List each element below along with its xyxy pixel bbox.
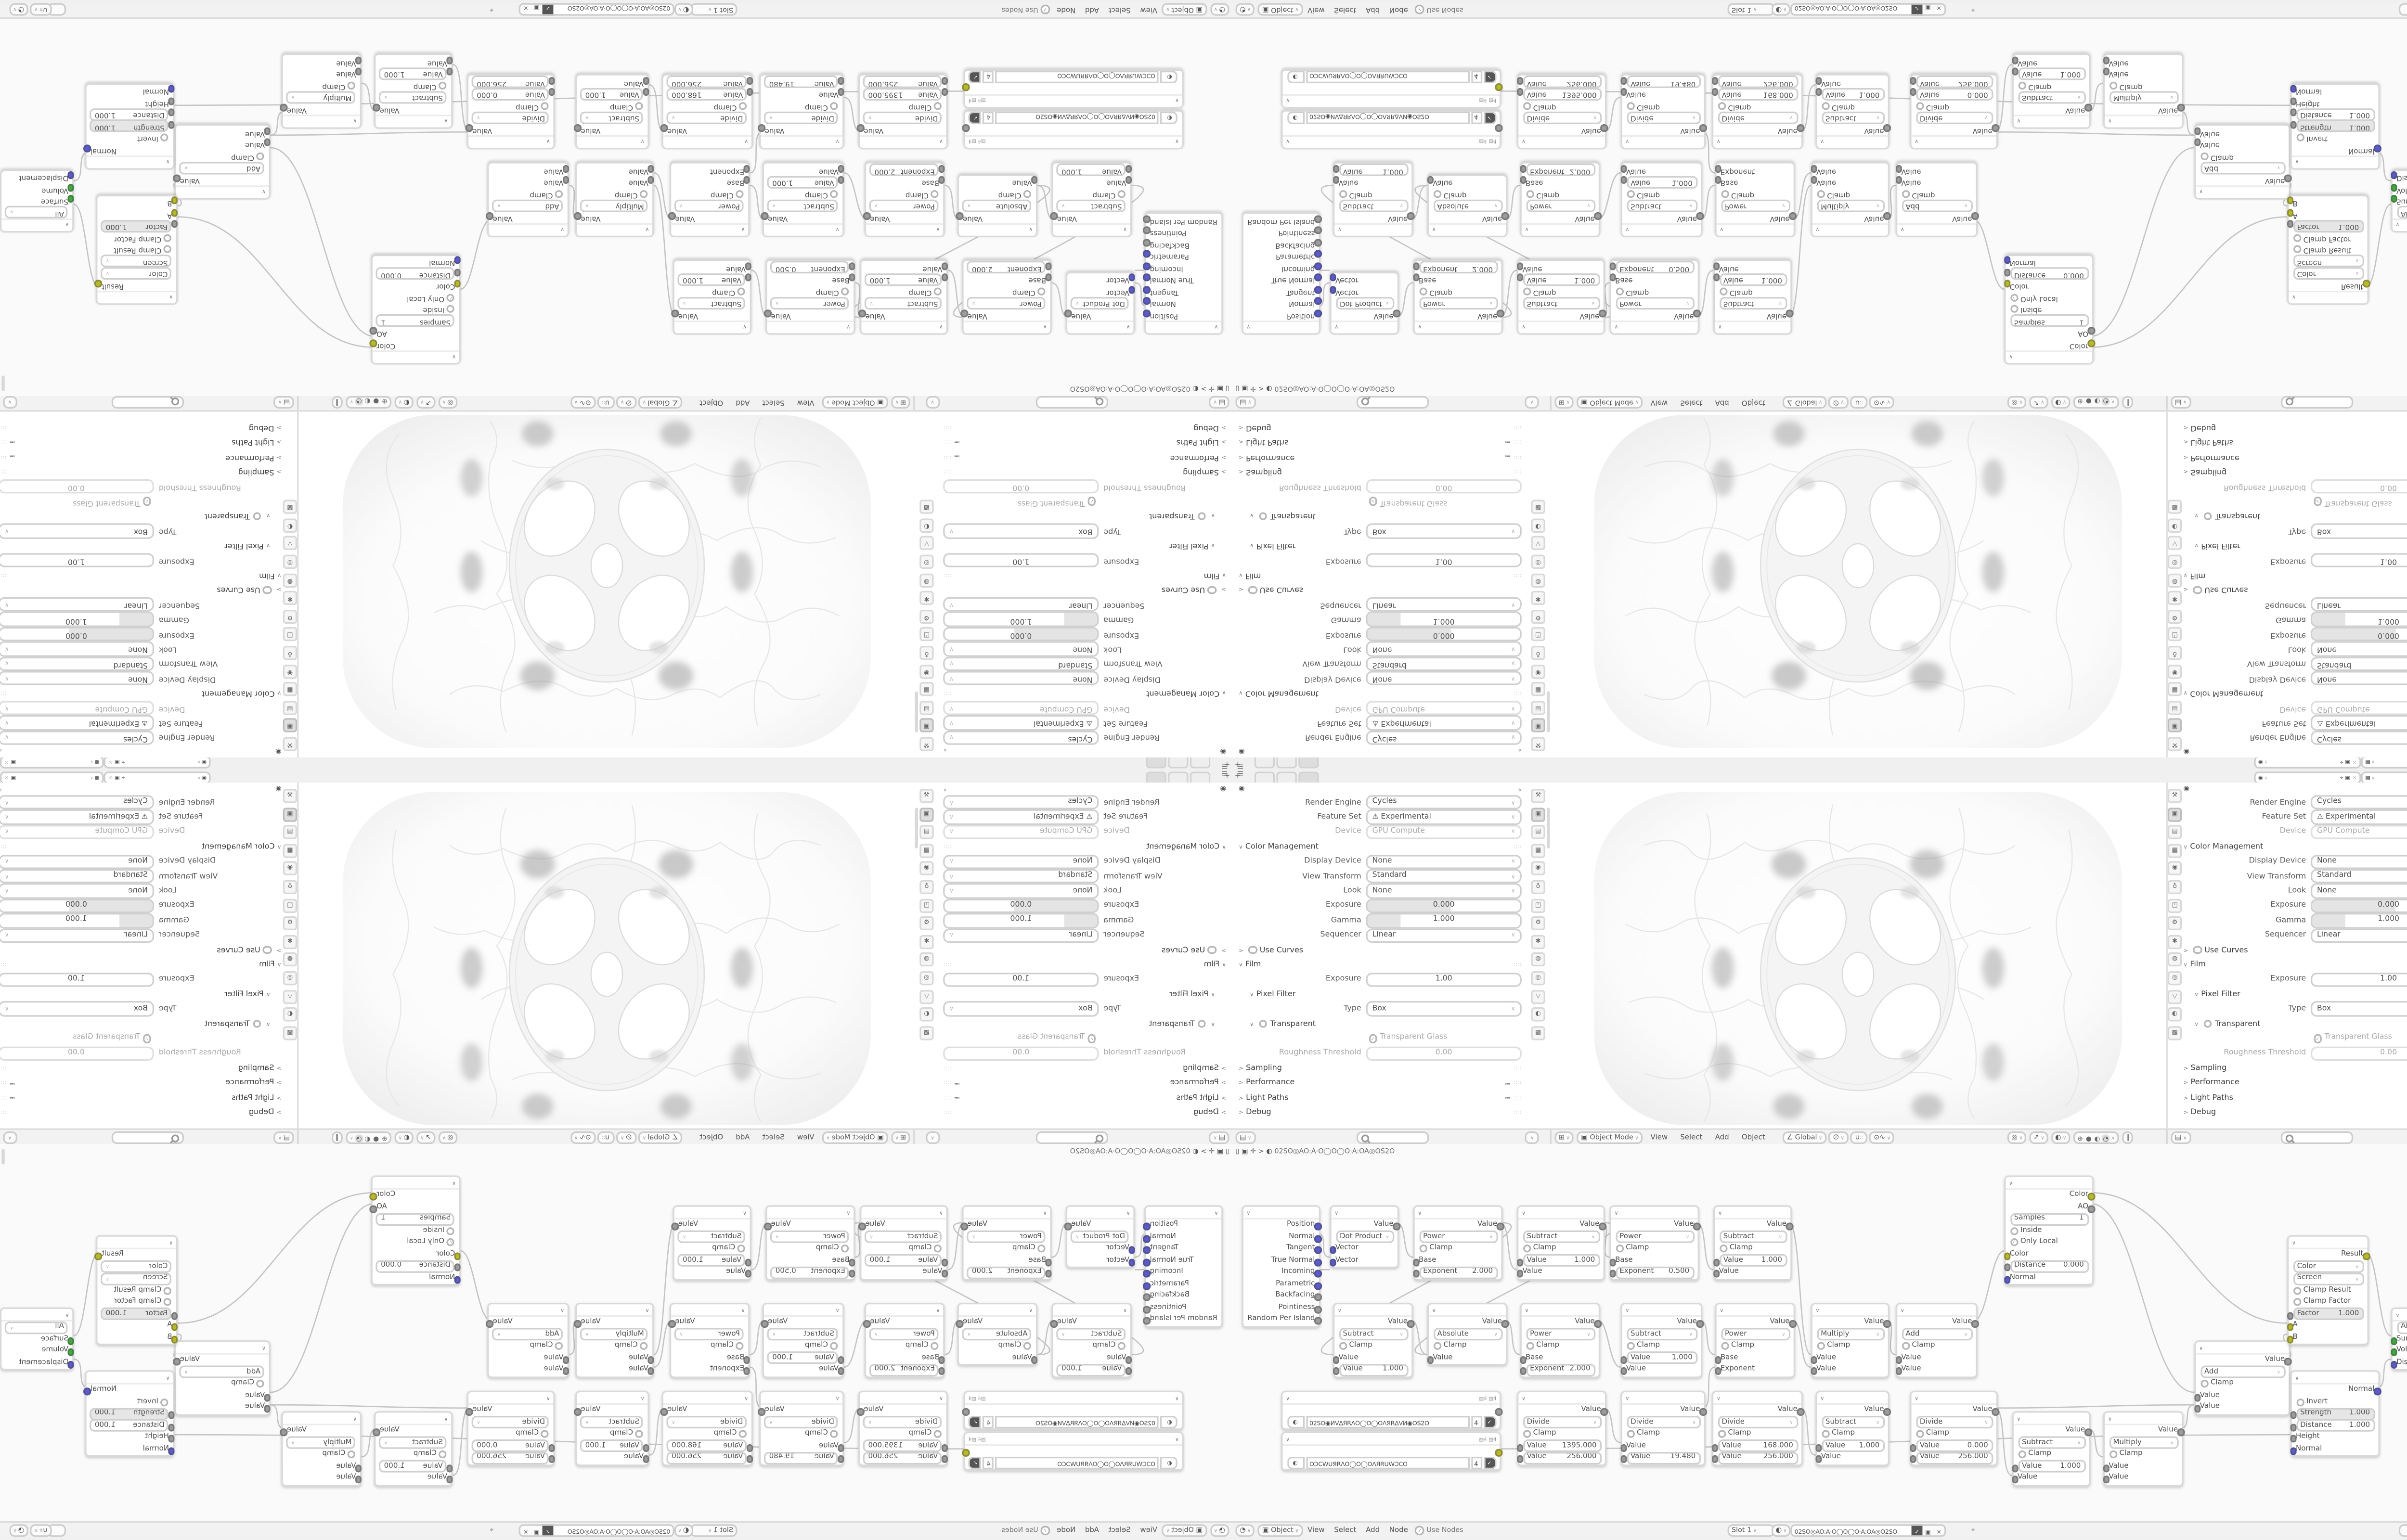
copy-icon[interactable]: ▣ (11, 774, 16, 781)
properties-tab-data-icon[interactable]: ▽ (919, 537, 933, 551)
node-row-value[interactable]: Value19.480 (761, 1452, 842, 1463)
properties-search[interactable] (1357, 1130, 1429, 1146)
dropdown-sequencer[interactable]: Linear∨ (943, 928, 1099, 943)
properties-filter[interactable]: ∨ (1525, 395, 1538, 411)
node-row-divide[interactable]: Divide∨ (468, 1417, 553, 1428)
section-sampling[interactable]: >Sampling∷∷ (2184, 1061, 2407, 1076)
menu-select[interactable]: Select (762, 1134, 784, 1142)
workspace-tabs[interactable] (1255, 771, 1320, 783)
node-row-clamp[interactable]: Clamp (671, 188, 748, 199)
checkbox-transparent-glass[interactable]: ✓Transparent Glass (1239, 1031, 1522, 1046)
node-row-value[interactable]: Value256.000 (1912, 76, 1996, 88)
properties-tab-modifiers-icon[interactable]: ⚙ (283, 609, 297, 623)
fake-user-shield-button[interactable]: ✓ (969, 1416, 982, 1428)
node-row-subtract[interactable]: Subtract∨ (2014, 1437, 2089, 1449)
properties-tab-particles-icon[interactable]: ✱ (919, 591, 933, 605)
node-row-clamp[interactable]: Clamp (577, 1428, 647, 1440)
node-math[interactable]: ∨ValueMultiply∨ClampValueValue (575, 163, 654, 237)
slider-exposure[interactable]: 0.000 (943, 898, 1099, 913)
node-math[interactable]: ∨ValueSubtract∨ClampValue1.000Value (1815, 75, 1889, 149)
node-row-power[interactable]: Power∨ (767, 1231, 854, 1243)
menu-add[interactable]: Add (1715, 398, 1729, 406)
section-color-management[interactable]: ∨Color Management∷∷ (943, 686, 1226, 701)
properties-tab-material-icon[interactable]: ◐ (919, 518, 933, 532)
node-math[interactable]: ∨ValuePower∨ClampBaseExponent0.500 (765, 1205, 855, 1280)
node-row-clamp[interactable]: Clamp (866, 188, 943, 199)
node-row-inside[interactable]: Inside (373, 303, 459, 315)
dropdown-render-engine[interactable]: Cycles∨ (0, 730, 154, 745)
dropdown-view-transform[interactable]: Standard∨ (1366, 656, 1522, 671)
node-math[interactable]: ∨ValuePower∨ClampBaseExponent0.500 (765, 260, 855, 334)
node-math[interactable]: ∨ValuePower∨ClampBaseExponent2.000 (1413, 1205, 1503, 1280)
properties-tab-physics-icon[interactable]: ◍ (283, 573, 297, 587)
properties-tab-output-icon[interactable]: ▤ (283, 701, 297, 715)
menu-object[interactable]: Object (699, 1134, 723, 1142)
node-math[interactable]: ∨ValueDivide∨ClampValueValue19.480 (759, 1391, 844, 1465)
node-row-clamp[interactable]: Clamp (1053, 188, 1130, 199)
node-row-value[interactable]: Value19.480 (761, 76, 842, 88)
section-film[interactable]: ∨Film∷∷ (943, 958, 1226, 973)
group-browse-icon[interactable]: ◐ (1287, 70, 1304, 82)
scrollbar[interactable] (916, 808, 919, 848)
node-row-clamp[interactable]: Clamp (1622, 100, 1704, 111)
snap-button[interactable]: ∪⌗∨ (30, 3, 52, 16)
node-math[interactable]: ∨ValueSubtract∨ClampValueValue1.000 (1333, 163, 1413, 237)
section-film[interactable]: ∨Film∷∷ (1239, 568, 1522, 583)
shading-mode-group[interactable]: ⊕●◐◔∨ (2073, 1131, 2120, 1144)
dropdown-feature-set[interactable]: ⚠Experimental∨ (0, 810, 154, 825)
menu-node[interactable]: Node (1057, 1527, 1075, 1534)
node-math[interactable]: ∨ValueDivide∨ClampValue1395.000Value256.… (1517, 75, 1606, 149)
node-math[interactable]: ∨ValueDivide∨ClampValue0.000Value256.000 (467, 1391, 555, 1465)
node-row-clamp[interactable]: Clamp (860, 1428, 946, 1440)
node-math[interactable]: ∨ValuePower∨ClampBaseExponent (1715, 163, 1795, 237)
node-math[interactable]: ∨ValuePower∨ClampBaseExponent0.500 (1610, 1205, 1699, 1280)
menu-object[interactable]: Object (1742, 398, 1765, 406)
node-row-clamp[interactable]: Clamp (1622, 188, 1701, 199)
node-row-divide[interactable]: Divide∨ (663, 1417, 751, 1428)
node-row-distance[interactable]: Distance1.000 (2292, 108, 2379, 120)
node-math[interactable]: ∨ValueAdd∨ClampValueValue (487, 1303, 569, 1377)
node-row-power[interactable]: Power∨ (1522, 200, 1599, 211)
node-row-clamp[interactable]: Clamp (764, 1340, 842, 1352)
node-row-clamp[interactable]: Clamp (2014, 79, 2089, 91)
node-math[interactable]: ∨ValueAdd∨ClampValueValue (1896, 1303, 1978, 1377)
section-use-curves[interactable]: >Use Curves (2184, 943, 2407, 958)
solid-icon[interactable]: ● (2084, 1134, 2093, 1142)
node-math[interactable]: ∨ValueSubtract∨ClampValue1.000Value (1517, 260, 1605, 334)
node-math[interactable]: ∨ValueSubtract∨ClampValueValue1.000 (1051, 1303, 1132, 1377)
node-math[interactable]: ∨ValueAdd∨ClampValueValue (2194, 1340, 2290, 1415)
material-browse-button[interactable]: ◐∨ (674, 3, 693, 16)
properties-search[interactable] (2281, 1130, 2353, 1146)
node-row-clamp[interactable]: Clamp (860, 100, 946, 111)
section-pixel-filter[interactable]: ∨Pixel Filter (2184, 538, 2407, 553)
editor-type-button[interactable]: ▤∨ (1209, 1131, 1229, 1144)
use-nodes-checkbox[interactable]: ✓Use Nodes (1413, 1526, 1463, 1535)
node-row-subtract[interactable]: Subtract∨ (861, 1231, 946, 1243)
viewport-editor-type-button[interactable]: ⊞∨ (891, 1131, 910, 1144)
properties-search[interactable] (1357, 395, 1429, 411)
properties-tab-material-icon[interactable]: ◐ (2168, 518, 2182, 532)
node-nodegroup[interactable]: ∨▤4 ▤4◐02SO◉ИVΔЯRΛO◯O◯OΛЯRΔVИ◉OS2O4✓ (1281, 1391, 1501, 1430)
properties-tab-column[interactable]: ⚒▣▤▦◉♁◳⚙✱◍◎▽◐▩ (2168, 412, 2181, 757)
properties-tab-object-icon[interactable]: ◳ (2168, 628, 2182, 642)
section-debug[interactable]: >Debug∷∷ (943, 420, 1226, 435)
properties-tab-world-icon[interactable]: ♁ (1531, 880, 1545, 894)
viewport-3d-rendered[interactable] (1550, 412, 2166, 757)
properties-tab-particles-icon[interactable]: ✱ (2168, 935, 2182, 949)
node-row-power[interactable]: Power∨ (1717, 1329, 1794, 1340)
menu-select[interactable]: Select (1680, 1134, 1702, 1142)
group-browse-icon[interactable]: ◐ (1161, 70, 1178, 82)
node-row-clamp[interactable]: Clamp (1717, 188, 1794, 199)
node-row-distance[interactable]: Distance0.000 (373, 1260, 459, 1272)
node-math[interactable]: ∨ValueMultiply∨ClampValueValue (1811, 1303, 1889, 1377)
node-math[interactable]: ∨ValuePower∨ClampBaseExponent2.000 (1520, 163, 1601, 237)
node-row-subtract[interactable]: Subtract∨ (1053, 1329, 1130, 1340)
node-row-value[interactable]: Value1.000 (1622, 176, 1701, 188)
material-name-field[interactable]: 02SO◎AO:A·O◯O◯O·A:OA◎O2SO (1790, 1524, 1919, 1537)
node-row-value[interactable]: Value1.000 (1053, 164, 1130, 176)
dropdown-view-transform[interactable]: Standard∨ (0, 656, 154, 671)
node-row-samples[interactable]: Samples1 (373, 1213, 459, 1225)
group-name-field[interactable]: OƆCWUЯRΛO◯O◯OΛЯRUWƆCO (1306, 1457, 1469, 1469)
node-row-value[interactable]: Value1.000 (1334, 1364, 1411, 1375)
workspace-tab[interactable] (1298, 757, 1318, 769)
node-math[interactable]: ∨ValueDivide∨ClampValueValue19.480 (759, 75, 844, 149)
node-math[interactable]: ∨ValueAbsolute∨ClampValue (958, 1303, 1038, 1366)
dropdown-render-engine[interactable]: Cycles∨ (2311, 730, 2407, 745)
node-math[interactable]: ∨ValuePower∨ClampBaseExponent2.000 (962, 260, 1051, 334)
node-row-invert[interactable]: Invert (87, 1396, 173, 1408)
node-math[interactable]: ∨ValuePower∨ClampBaseExponent2.000 (865, 1303, 945, 1377)
node-row-color[interactable]: Color∨ (2289, 1261, 2367, 1272)
properties-tab-viewlayer-icon[interactable]: ▦ (1531, 844, 1545, 858)
node-row-clamp[interactable]: Clamp (1713, 100, 1801, 111)
mode-dropdown[interactable]: ▣ Object Mode∨ (822, 396, 888, 409)
properties-tab-tool-icon[interactable]: ⚒ (2168, 737, 2182, 751)
pivot-button[interactable]: ◎∨ (2007, 396, 2027, 409)
editor-type-button[interactable]: ▤∨ (274, 396, 294, 409)
close-icon[interactable]: × (4, 759, 9, 765)
unlink-button[interactable]: × (1933, 1524, 1946, 1537)
transform-gizmo-button[interactable]: ↗∨ (2029, 1131, 2048, 1144)
pin-icon[interactable]: ⌖ (943, 747, 947, 755)
properties-tab-viewlayer-icon[interactable]: ▦ (283, 682, 297, 696)
node-row-clamp[interactable]: Clamp (674, 1243, 750, 1255)
node-math[interactable]: ∨ValueDivide∨ClampValueValue19.480 (1621, 1391, 1706, 1465)
section-sampling[interactable]: >Sampling∷∷ (0, 1061, 281, 1076)
pause-render-button[interactable]: ‖ (331, 396, 343, 409)
viewport-3d-rendered[interactable] (298, 412, 915, 757)
dropdown-sequencer[interactable]: Linear∨ (943, 597, 1099, 612)
slider-roughness-threshold[interactable]: 0.00 (2311, 479, 2407, 494)
node-row-clamp[interactable]: Clamp (1518, 285, 1603, 297)
node-math[interactable]: ∨ValueDivide∨ClampValueValue19.480 (1621, 75, 1706, 149)
node-geometry[interactable]: ∨PositionNormalTangentTrue NormalIncomin… (1144, 1205, 1223, 1327)
node-row-clamp[interactable]: Clamp (959, 188, 1036, 199)
dropdown-feature-set[interactable]: ⚠Experimental∨ (943, 715, 1099, 730)
node-row-subtract[interactable]: Subtract∨ (1334, 1329, 1411, 1340)
node-row-value[interactable]: Value1395.000 (1518, 1440, 1605, 1452)
properties-tab-particles-icon[interactable]: ✱ (2168, 591, 2182, 605)
dropdown-device[interactable]: GPU Compute∨ (943, 701, 1099, 716)
dropdown-view-transform[interactable]: Standard∨ (0, 869, 154, 884)
slider-gamma[interactable]: 1.000 (1366, 913, 1522, 928)
node-row-clamp[interactable]: Clamp (1897, 1340, 1976, 1352)
node-row-value[interactable]: Value0.000 (468, 1440, 553, 1452)
node-row-color[interactable]: Color∨ (97, 1261, 176, 1272)
node-row-clamp-result[interactable]: Clamp Result (2289, 1284, 2367, 1296)
slider-exposure[interactable]: 1.00 (2311, 972, 2407, 987)
properties-tab-texture-icon[interactable]: ▩ (919, 500, 933, 514)
node-math[interactable]: ∨ValueMultiply∨ClampValueValue (281, 54, 362, 129)
section-transparent[interactable]: ∨Transparent (0, 1016, 281, 1031)
group-name-field[interactable]: OƆCWUЯRΛO◯O◯OΛЯRUWƆCO (996, 1457, 1159, 1469)
scrollbar[interactable] (1, 1149, 4, 1165)
dropdown-view-transform[interactable]: Standard∨ (1366, 869, 1522, 884)
node-math[interactable]: ∨ValuePower∨ClampBaseExponent (1715, 1303, 1795, 1377)
properties-tab-particles-icon[interactable]: ✱ (283, 591, 297, 605)
dropdown-feature-set[interactable]: ⚠Experimental∨ (2311, 715, 2407, 730)
node-row-absolute[interactable]: Absolute∨ (959, 200, 1036, 211)
group-browse-icon[interactable]: ◐ (1287, 111, 1304, 123)
node-row-clamp[interactable]: Clamp (1429, 1340, 1506, 1352)
material-name-field[interactable]: 02SO◎AO:A·O◯O◯O·A:OA◎O2SO (545, 3, 674, 16)
node-mix[interactable]: ∨ResultColor∨Screen∨Clamp ResultClamp Fa… (2287, 195, 2369, 305)
menu-hamburger-icon[interactable]: ☰ (1221, 760, 1228, 768)
workspace-tab[interactable] (1190, 771, 1210, 783)
node-row-clamp[interactable]: Clamp (671, 1340, 748, 1352)
node-row-exponent[interactable]: Exponent0.500 (1611, 1267, 1698, 1278)
properties-tab-particles-icon[interactable]: ✱ (1531, 591, 1545, 605)
wireframe-icon[interactable]: ⊕ (2076, 1134, 2084, 1142)
user-count[interactable]: 4 (1471, 1457, 1482, 1469)
workspace-tab[interactable] (1168, 757, 1189, 769)
node-row-add[interactable]: Add∨ (489, 1329, 568, 1340)
node-material-output[interactable]: ∨All∨SurfaceVolumeDisplacement (2391, 170, 2407, 233)
properties-tab-object-icon[interactable]: ◳ (919, 898, 933, 912)
node-row-strength[interactable]: Strength1.000 (2292, 1408, 2379, 1420)
node-row-clamp-factor[interactable]: Clamp Factor (97, 232, 176, 244)
node-row-power[interactable]: Power∨ (866, 200, 943, 211)
properties-filter[interactable]: ∨ (927, 1130, 940, 1146)
properties-tab-output-icon[interactable]: ▤ (2168, 701, 2182, 715)
node-row-subtract[interactable]: Subtract∨ (1817, 1417, 1888, 1428)
node-math[interactable]: ∨ValuePower∨ClampBaseExponent (670, 163, 750, 237)
section-performance[interactable]: >Performance≔∷∷ (2184, 449, 2407, 464)
viewlayer-selector[interactable]: ▦∨ ▣ × (2361, 772, 2407, 784)
node-row-clamp[interactable]: Clamp (761, 100, 842, 111)
user-count[interactable]: 4 (983, 111, 994, 123)
node-row-clamp[interactable]: Clamp (764, 188, 842, 199)
properties-tab-modifiers-icon[interactable]: ⚙ (283, 916, 297, 930)
properties-tab-constraints-icon[interactable]: ◎ (919, 555, 933, 569)
blank-toggle-button[interactable] (2399, 3, 2407, 16)
section-color-management[interactable]: ∨Color Management∷∷ (2184, 686, 2407, 701)
slider-roughness-threshold[interactable]: 0.00 (1366, 479, 1522, 494)
viewport-3d-rendered[interactable] (1550, 783, 2166, 1128)
editor-type-button[interactable]: ◔∨ (1236, 1524, 1255, 1537)
dropdown-feature-set[interactable]: ⚠Experimental∨ (1366, 810, 1522, 825)
editor-type-button[interactable]: ▤∨ (2171, 1131, 2190, 1144)
node-row-clamp-factor[interactable]: Clamp Factor (2289, 232, 2367, 244)
workspace-tab[interactable] (1298, 771, 1318, 783)
overlays-button[interactable]: ◐∨ (2051, 1131, 2071, 1144)
node-row-value[interactable]: Value256.000 (1713, 76, 1801, 88)
use-nodes-checkbox[interactable]: ✓Use Nodes (1413, 5, 1463, 13)
node-math[interactable]: ∨ValuePower∨ClampBaseExponent2.000 (962, 1205, 1051, 1280)
overlays-button[interactable]: ◐∨ (394, 396, 414, 409)
node-row-clamp[interactable]: Clamp (1334, 1340, 1411, 1352)
dropdown-sequencer[interactable]: Linear∨ (0, 597, 154, 612)
properties-tab-render-icon[interactable]: ▣ (1531, 807, 1545, 821)
menu-add[interactable]: Add (1366, 1527, 1380, 1534)
node-math[interactable]: ∨ValueAbsolute∨ClampValue (1427, 174, 1508, 237)
node-row-divide[interactable]: Divide∨ (1622, 112, 1704, 123)
pause-render-button[interactable]: ‖ (2122, 1131, 2134, 1144)
node-row-value[interactable]: Value1.000 (764, 176, 842, 188)
slider-exposure[interactable]: 1.00 (943, 972, 1099, 987)
properties-tab-render-icon[interactable]: ▣ (919, 719, 933, 733)
properties-tab-material-icon[interactable]: ◐ (283, 1007, 297, 1021)
menu-hamburger-icon[interactable]: ☰ (1237, 760, 1243, 768)
fake-user-shield-button[interactable]: ✓ (1483, 70, 1496, 82)
node-row-add[interactable]: Add∨ (176, 162, 269, 173)
node-row-subtract[interactable]: Subtract∨ (1053, 200, 1130, 211)
node-row-inside[interactable]: Inside (2006, 303, 2093, 315)
transform-gizmo-button[interactable]: ↗∨ (2029, 396, 2048, 409)
node-math[interactable]: ∨ValueSubtract∨ClampValue1.000Value (763, 163, 844, 237)
properties-tab-output-icon[interactable]: ▤ (919, 701, 933, 715)
node-math[interactable]: ∨ValueSubtract∨ClampValue1.000Value (860, 260, 948, 334)
group-name-field[interactable]: OƆCWUЯRΛO◯O◯OΛЯRUWƆCO (1306, 70, 1469, 82)
properties-tab-physics-icon[interactable]: ◍ (919, 953, 933, 967)
editor-type-button[interactable]: ◔∨ (1210, 3, 1229, 16)
node-row-value[interactable]: Value1.000 (861, 273, 946, 285)
properties-tab-object-icon[interactable]: ◳ (2168, 898, 2182, 912)
node-row-subtract[interactable]: Subtract∨ (674, 297, 750, 308)
node-row-invert[interactable]: Invert (2292, 1396, 2379, 1408)
section-light-paths[interactable]: >Light Paths≔∷∷ (0, 1091, 281, 1105)
node-nodegroup[interactable]: ∨▤4 ▤4◐OƆCWUЯRΛO◯O◯OΛЯRUWƆCO4✓ (964, 1432, 1184, 1471)
section-light-paths[interactable]: >Light Paths≔∷∷ (2184, 1091, 2407, 1105)
copy-icon[interactable]: ▣ (2345, 774, 2350, 781)
section-pixel-filter[interactable]: ∨Pixel Filter (1239, 538, 1522, 553)
node-row-value[interactable]: Value1.000 (1334, 164, 1411, 176)
use-nodes-checkbox[interactable]: ✓Use Nodes (1001, 1526, 1052, 1535)
dropdown-look[interactable]: None∨ (1366, 884, 1522, 898)
menu-select[interactable]: Select (1334, 1527, 1356, 1534)
node-row-multiply[interactable]: Multiply∨ (577, 200, 652, 211)
menu-view[interactable]: View (1307, 5, 1325, 13)
section-sampling[interactable]: >Sampling∷∷ (1239, 1061, 1522, 1076)
material-browse-button[interactable]: ◐∨ (1772, 3, 1791, 16)
viewlayer-selector[interactable]: ▦∨ ▣ × (2361, 757, 2407, 769)
node-row-divide[interactable]: Divide∨ (860, 112, 946, 123)
node-row-strength[interactable]: Strength1.000 (87, 1408, 173, 1420)
pin-icon[interactable]: ⌖ (2340, 774, 2343, 781)
section-performance[interactable]: >Performance≔∷∷ (0, 449, 281, 464)
node-nodegroup[interactable]: ∨▤4 ▤4◐02SO◉ИVΔЯRΛO◯O◯OΛЯRΔVИ◉OS2O4✓ (1281, 110, 1501, 150)
properties-tab-column[interactable]: ⚒▣▤▦◉♁◳⚙✱◍◎▽◐▩ (284, 783, 296, 1128)
node-row-value[interactable]: Value256.000 (468, 1452, 553, 1463)
section-sampling[interactable]: >Sampling∷∷ (943, 464, 1226, 479)
dropdown-view-transform[interactable]: Standard∨ (2311, 869, 2407, 884)
pin-icon[interactable]: ⌖ (1518, 785, 1522, 793)
node-row-value[interactable]: Value1395.000 (860, 1440, 946, 1452)
node-row-factor[interactable]: Factor1.000 (2289, 220, 2367, 231)
snap-target-button[interactable]: ∅∨ (617, 396, 636, 409)
group-name-field[interactable]: 02SO◉ИVΔЯRΛO◯O◯OΛЯRΔVИ◉OS2O (996, 111, 1159, 123)
shading-mode-group[interactable]: ⊕●◐◔∨ (2073, 396, 2120, 409)
properties-tab-output-icon[interactable]: ▤ (2168, 825, 2182, 839)
node-row-subtract[interactable]: Subtract∨ (1334, 200, 1411, 211)
node-row-subtract[interactable]: Subtract∨ (764, 200, 842, 211)
menu-select[interactable]: Select (1109, 1527, 1131, 1534)
properties-tab-tool-icon[interactable]: ⚒ (283, 737, 297, 751)
slider-gamma[interactable]: 1.000 (943, 612, 1099, 627)
node-row-exponent[interactable]: Exponent0.500 (767, 262, 854, 273)
menu-hamburger-icon[interactable]: ☰ (1221, 772, 1228, 780)
node-row-value[interactable]: Value1.000 (674, 1255, 750, 1266)
node-row-screen[interactable]: Screen∨ (97, 1273, 176, 1284)
node-row-clamp[interactable]: Clamp (964, 1243, 1050, 1255)
proportional-edit-button[interactable]: ⊙∿∨ (1870, 396, 1895, 409)
section-light-paths[interactable]: >Light Paths≔∷∷ (1239, 435, 1522, 450)
mode-dropdown[interactable]: ▣ Object Mode∨ (1577, 396, 1643, 409)
section-light-paths[interactable]: >Light Paths≔∷∷ (1239, 1091, 1522, 1105)
properties-tab-constraints-icon[interactable]: ◎ (2168, 971, 2182, 985)
menu-add[interactable]: Add (1085, 1527, 1099, 1534)
properties-search[interactable] (112, 395, 184, 411)
pin-icon[interactable]: ⌖ (122, 759, 125, 765)
node-row-clamp[interactable]: Clamp (761, 1428, 842, 1440)
node-row-divide[interactable]: Divide∨ (1912, 1417, 1996, 1428)
properties-tab-texture-icon[interactable]: ▩ (1531, 500, 1545, 514)
node-row-exponent[interactable]: Exponent0.500 (1611, 262, 1698, 273)
node-row-multiply[interactable]: Multiply∨ (283, 1437, 360, 1449)
mode-dropdown[interactable]: ▣ Object Mode∨ (822, 1131, 888, 1144)
material-browse-button[interactable]: ◐∨ (1772, 1524, 1791, 1537)
node-geometry[interactable]: ∨PositionNormalTangentTrue NormalIncomin… (1242, 213, 1320, 334)
section-debug[interactable]: >Debug∷∷ (1239, 420, 1522, 435)
node-row-subtract[interactable]: Subtract∨ (674, 1231, 750, 1243)
node-math[interactable]: ∨ValueAdd∨ClampValueValue (2194, 125, 2290, 200)
group-browse-icon[interactable]: ◐ (1161, 1416, 1178, 1428)
transform-gizmo-button[interactable]: ↗∨ (416, 396, 436, 409)
node-row-value[interactable]: Value0.000 (468, 88, 553, 100)
node-row-absolute[interactable]: Absolute∨ (959, 1329, 1036, 1340)
node-row-value[interactable]: Value256.000 (663, 76, 751, 88)
properties-tab-world-icon[interactable]: ♁ (2168, 880, 2182, 894)
properties-tab-column[interactable]: ⚒▣▤▦◉♁◳⚙✱◍◎▽◐▩ (920, 412, 933, 757)
scrollbar[interactable] (1546, 692, 1549, 732)
close-icon[interactable]: × (4, 774, 9, 781)
user-count[interactable]: 4 (983, 70, 994, 82)
properties-tab-output-icon[interactable]: ▤ (1531, 825, 1545, 839)
node-mix[interactable]: ∨ResultColor∨Screen∨Clamp ResultClamp Fa… (96, 195, 178, 305)
node-math[interactable]: ∨ValuePower∨ClampBaseExponent2.000 (865, 163, 945, 237)
properties-tab-column[interactable]: ⚒▣▤▦◉♁◳⚙✱◍◎▽◐▩ (2168, 783, 2181, 1128)
section-debug[interactable]: >Debug∷∷ (943, 1105, 1226, 1120)
node-row-exponent[interactable]: Exponent2.000 (964, 1267, 1050, 1278)
node-row-add[interactable]: Add∨ (489, 200, 568, 211)
slot-dropdown[interactable]: Slot 1∨ (690, 3, 738, 16)
dropdown-look[interactable]: None∨ (943, 884, 1099, 898)
node-row-add[interactable]: Add∨ (1897, 200, 1976, 211)
